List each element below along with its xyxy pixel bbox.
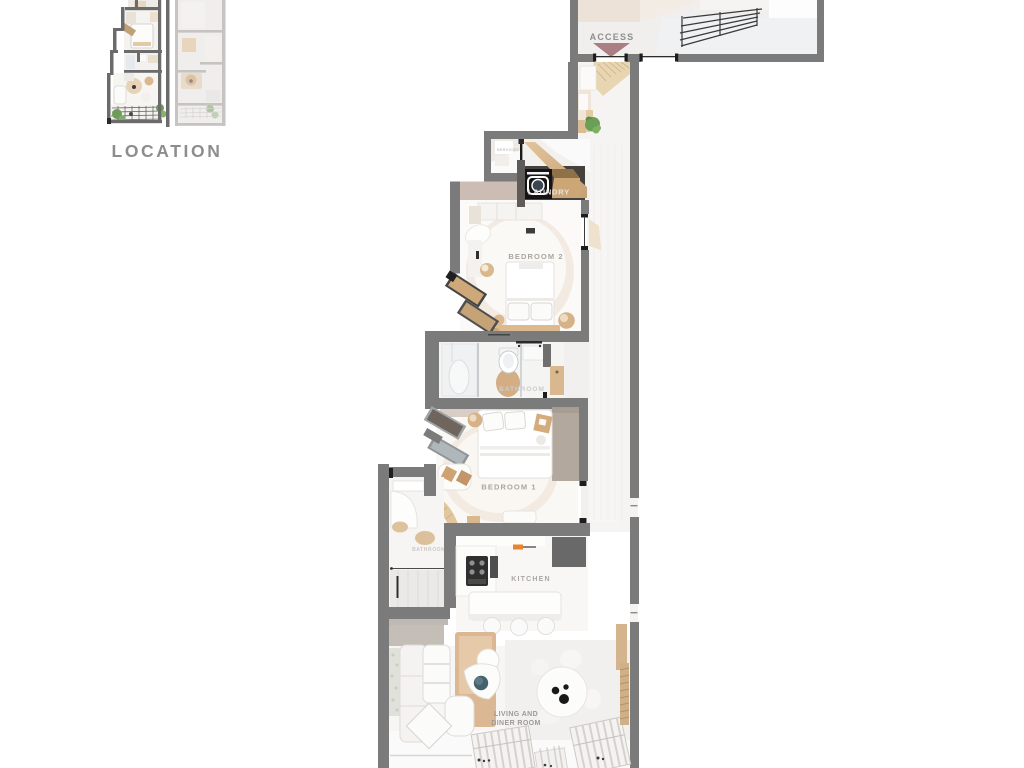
svg-text:KITCHEN: KITCHEN bbox=[511, 576, 551, 583]
svg-text:BATHROOM: BATHROOM bbox=[412, 547, 446, 553]
svg-text:LOCATION: LOCATION bbox=[112, 141, 223, 161]
svg-text:LAUNDRY: LAUNDRY bbox=[528, 188, 570, 197]
svg-text:BEDROOM 1: BEDROOM 1 bbox=[481, 483, 536, 492]
svg-text:SERVICES: SERVICES bbox=[497, 147, 520, 152]
svg-text:DINER ROOM: DINER ROOM bbox=[491, 720, 541, 727]
svg-text:BEDROOM 2: BEDROOM 2 bbox=[508, 252, 563, 261]
svg-text:ACCESS: ACCESS bbox=[590, 32, 635, 42]
svg-text:LIVING AND: LIVING AND bbox=[494, 711, 538, 718]
svg-text:BATHROOM: BATHROOM bbox=[499, 386, 545, 393]
